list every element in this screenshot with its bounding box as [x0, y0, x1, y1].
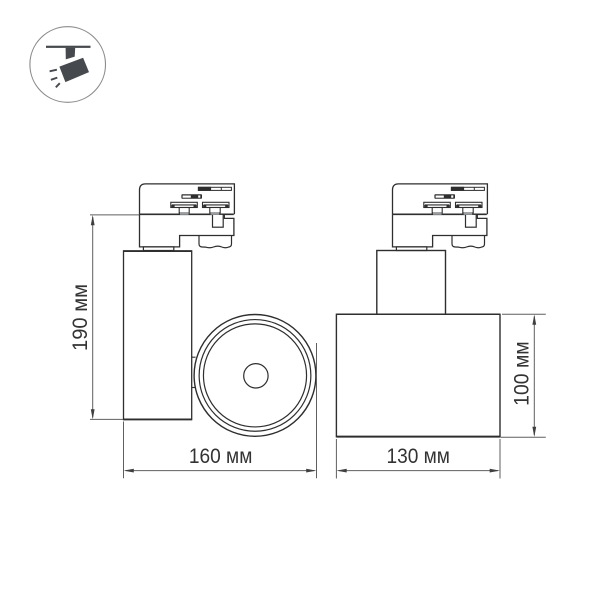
svg-text:190 мм: 190 мм — [68, 284, 92, 351]
svg-text:160 мм: 160 мм — [189, 444, 253, 468]
svg-text:130 мм: 130 мм — [386, 444, 450, 468]
svg-text:100 мм: 100 мм — [509, 341, 533, 406]
